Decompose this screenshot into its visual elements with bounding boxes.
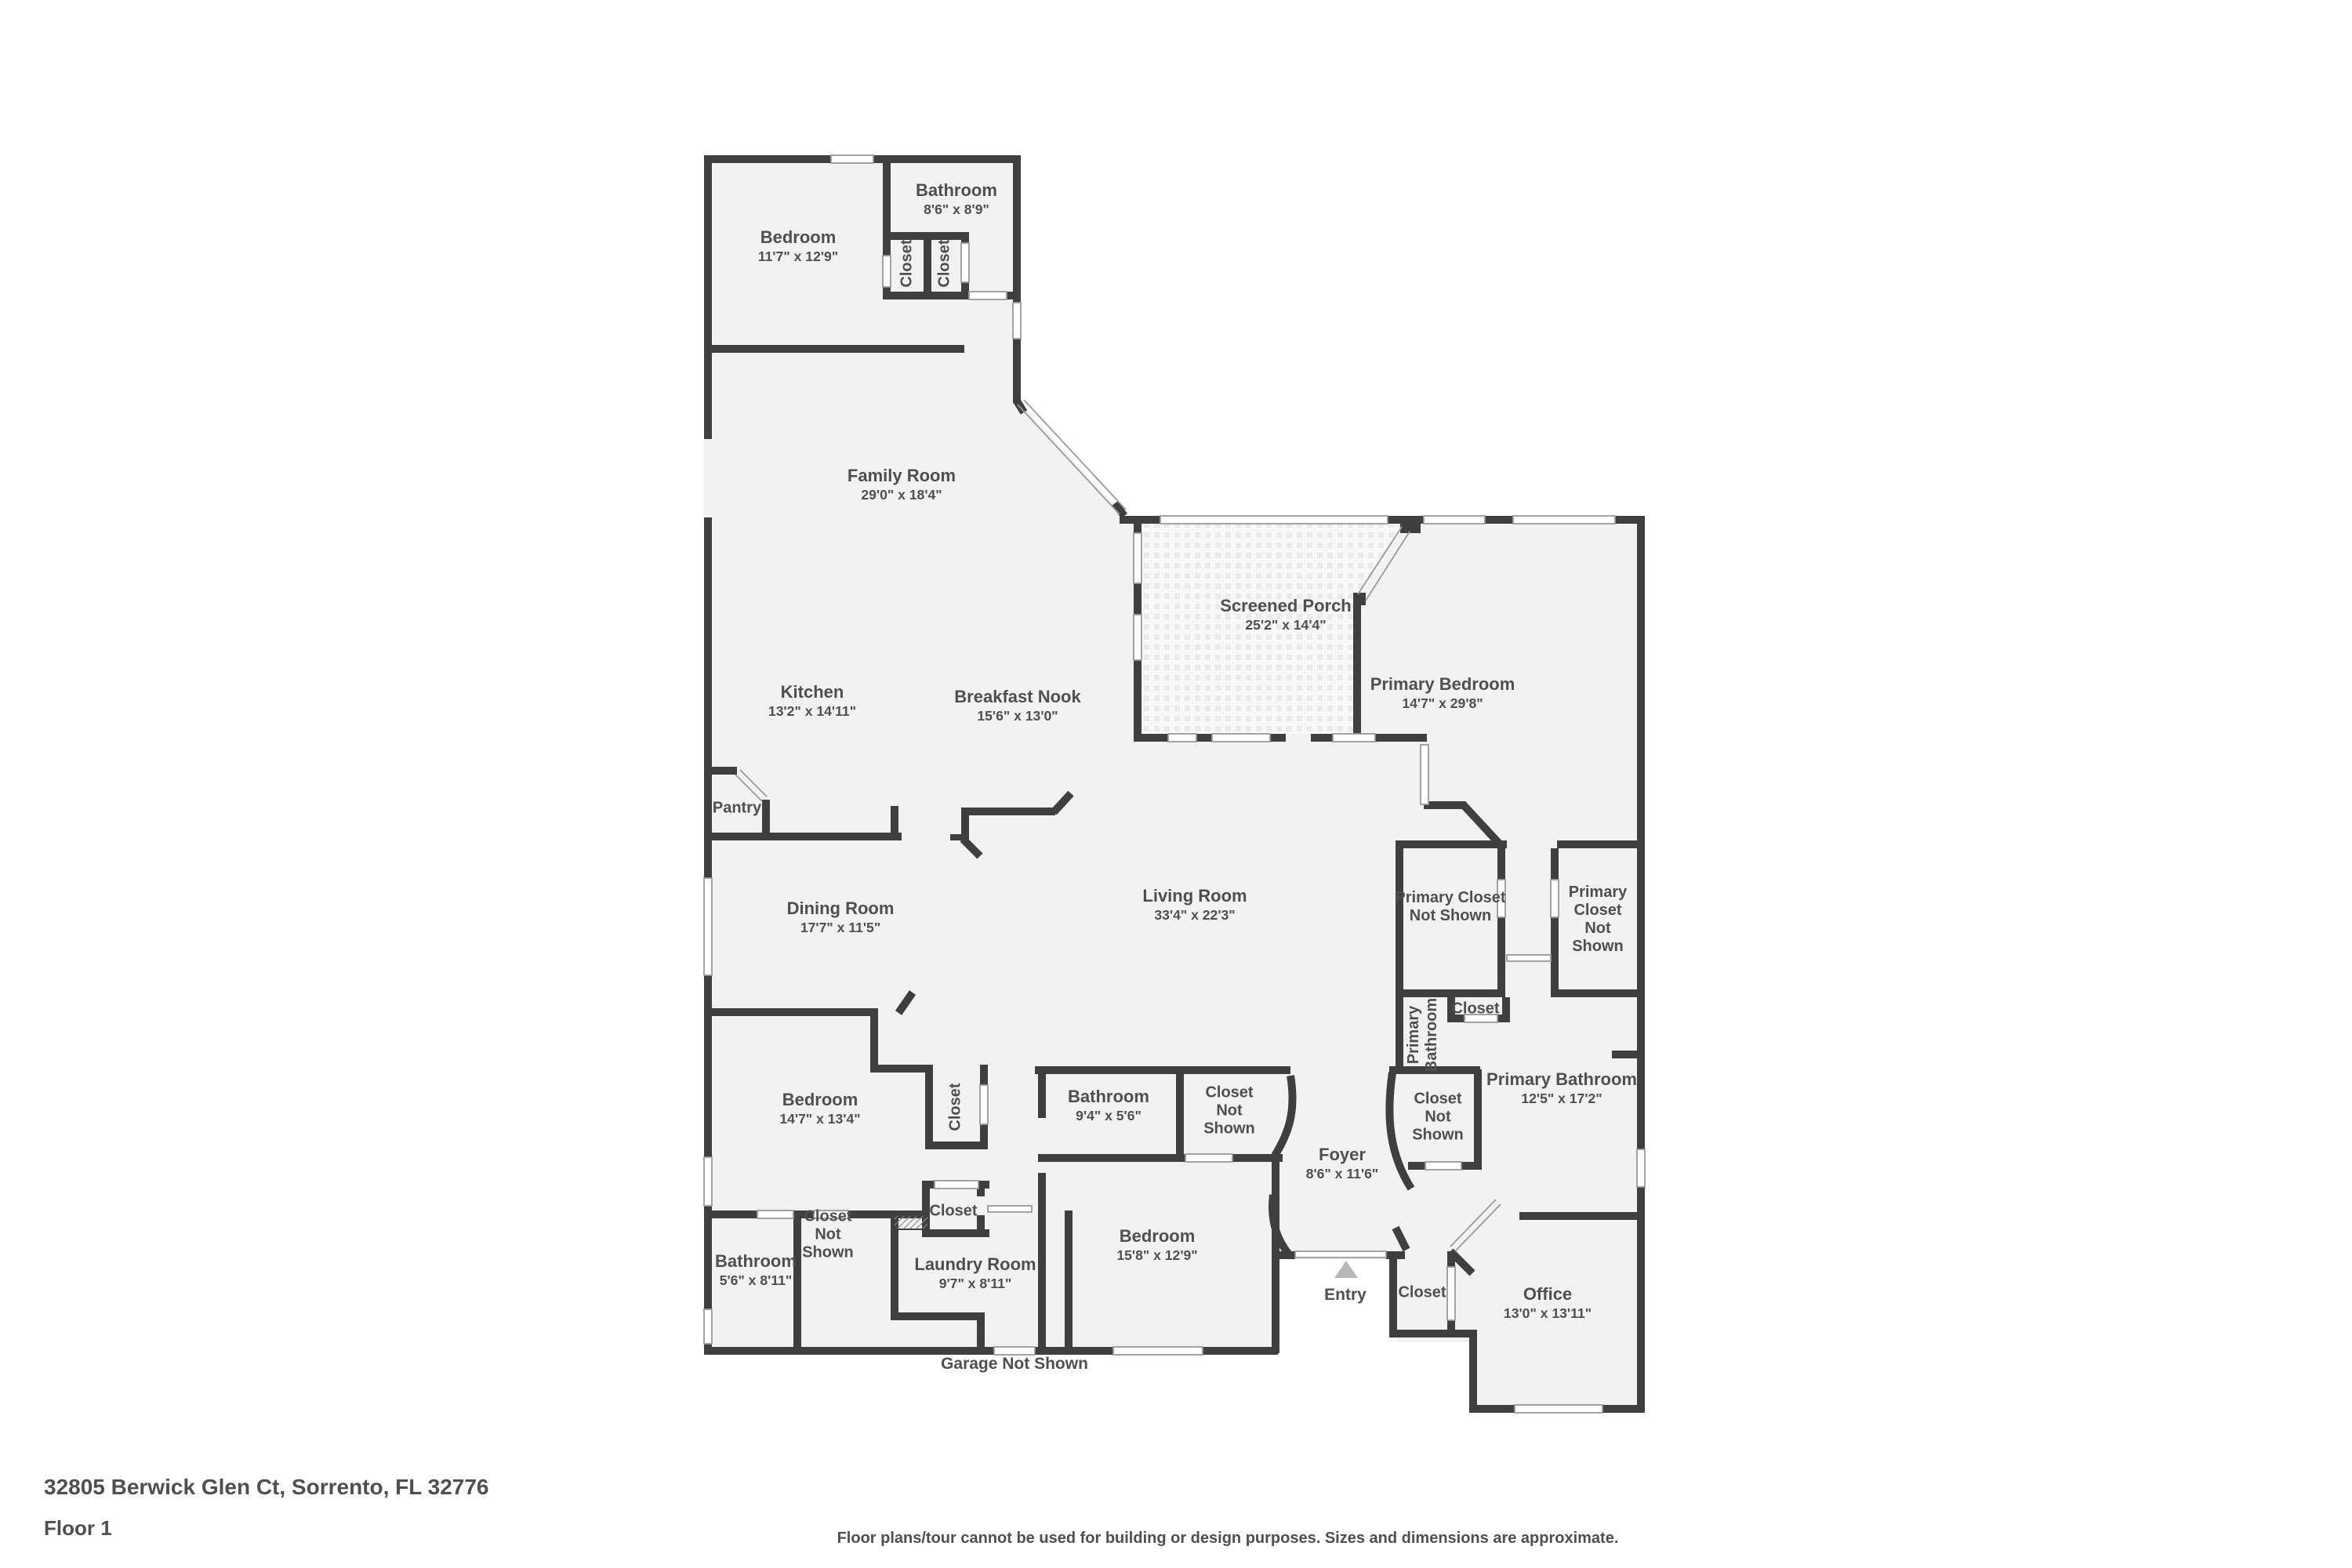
- floor-plan-page: Entry Garage Not Shown Bedroom11'7" x 12…: [0, 0, 2352, 1568]
- room-label-kitchen-7: Kitchen13'2" x 14'11": [768, 682, 856, 719]
- address: 32805 Berwick Glen Ct, Sorrento, FL 3277…: [44, 1475, 489, 1499]
- room-label-closet-28: Closet: [1398, 1283, 1446, 1301]
- room-label-closet-23: Closet: [929, 1202, 977, 1219]
- room-label-bathroom-25: Bathroom5'6" x 8'11": [715, 1251, 797, 1288]
- disclaimer: Floor plans/tour cannot be used for buil…: [837, 1530, 1619, 1547]
- room-label-bathroom-1: Bathroom8'6" x 8'9": [916, 180, 997, 217]
- room-label-pantry-9: Pantry: [713, 799, 762, 816]
- floor-plan-canvas: Entry Garage Not Shown Bedroom11'7" x 12…: [0, 0, 2352, 1568]
- room-label-closet-2: Closet: [898, 239, 915, 287]
- room-label-closet-18: Closet: [946, 1083, 964, 1131]
- room-label-closet-3: Closet: [935, 239, 953, 287]
- entry-label: Entry: [1324, 1286, 1367, 1304]
- room-label-dining-room-10: Dining Room17'7" x 11'5": [787, 898, 895, 935]
- garage-note: Garage Not Shown: [941, 1355, 1088, 1373]
- room-label-bedroom-0: Bedroom11'7" x 12'9": [758, 227, 838, 264]
- stairs-hatch: [894, 1215, 928, 1229]
- room-label-primary-bathroom-15: PrimaryBathroom: [1405, 998, 1440, 1072]
- entry-arrow-icon: [1334, 1261, 1358, 1278]
- room-label-bedroom-27: Bedroom15'8" x 12'9": [1116, 1226, 1197, 1263]
- room-label-bathroom-19: Bathroom9'4" x 5'6": [1068, 1087, 1149, 1123]
- room-label-closet-14: Closet: [1451, 1000, 1499, 1017]
- room-label-bedroom-17: Bedroom14'7" x 13'4": [779, 1090, 860, 1127]
- room-label-family-room-4: Family Room29'0" x 18'4": [848, 466, 956, 503]
- floor-label: Floor 1: [44, 1516, 112, 1540]
- room-label-primary-closet-not-shown-12: Primary ClosetNot Shown: [1395, 889, 1506, 924]
- room-label-living-room-11: Living Room33'4" x 22'3": [1142, 886, 1247, 923]
